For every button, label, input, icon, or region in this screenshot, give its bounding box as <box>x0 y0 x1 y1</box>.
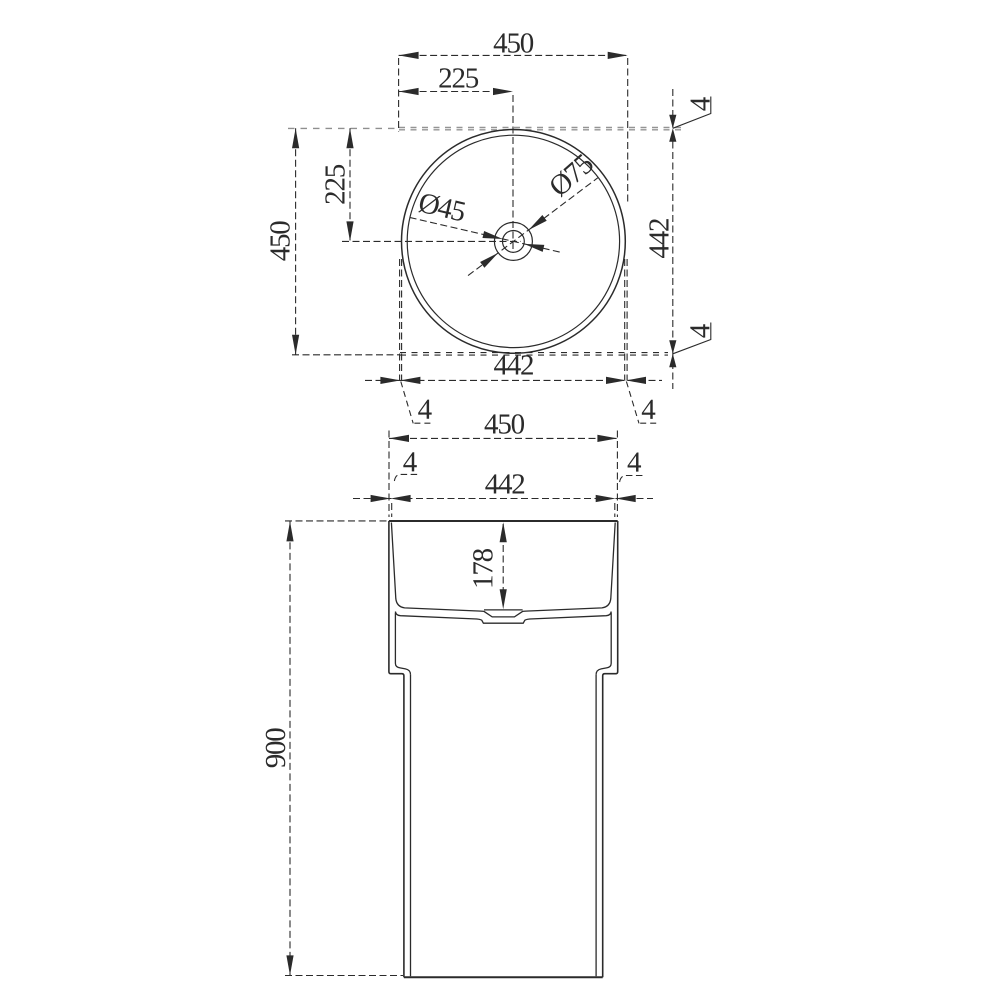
svg-text:442: 442 <box>643 219 675 259</box>
svg-text:4: 4 <box>403 446 418 478</box>
svg-text:4: 4 <box>418 394 433 426</box>
svg-text:442: 442 <box>485 468 525 500</box>
svg-text:4: 4 <box>685 96 717 111</box>
svg-text:225: 225 <box>438 62 479 94</box>
svg-text:450: 450 <box>484 408 525 440</box>
svg-text:900: 900 <box>260 728 292 769</box>
svg-text:442: 442 <box>493 349 533 381</box>
svg-text:450: 450 <box>264 221 296 262</box>
svg-text:4: 4 <box>641 394 656 426</box>
svg-text:4: 4 <box>627 447 642 479</box>
svg-text:4: 4 <box>684 323 716 338</box>
svg-text:450: 450 <box>493 27 534 59</box>
svg-text:225: 225 <box>320 164 352 205</box>
svg-text:178: 178 <box>467 548 499 589</box>
